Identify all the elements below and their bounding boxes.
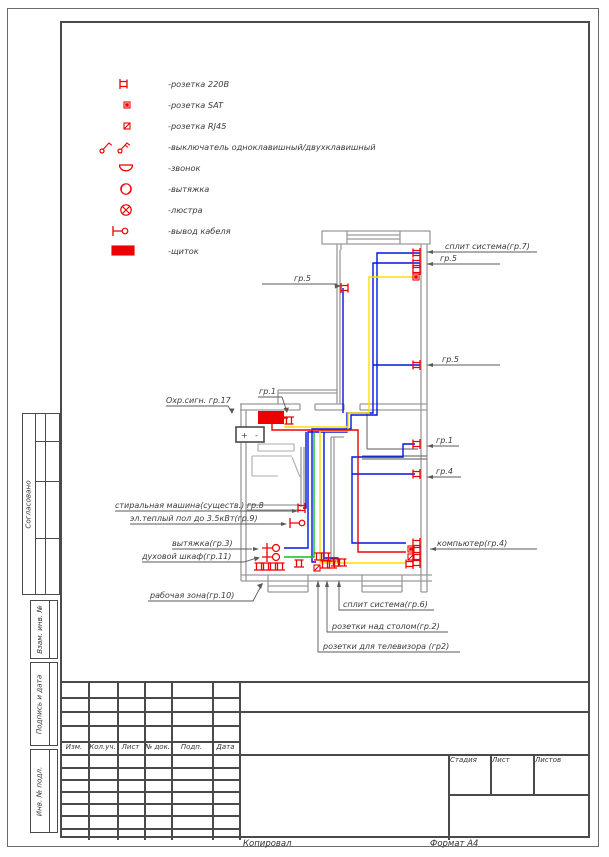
wire-red xyxy=(272,418,406,552)
battery-plus: + xyxy=(241,431,248,440)
replace-inv-label: Взам. инв. № xyxy=(30,600,48,659)
wire-green xyxy=(284,433,314,557)
label-washer: стиральная машина(существ.) гр.8 xyxy=(115,501,264,510)
legend-label-switch: -выключатель одноклавишный/двухклавишный xyxy=(168,142,376,152)
inv-orig-label: Инв. № подл. xyxy=(30,749,48,833)
title-block: Изм. Кол.уч. Лист № док. Подп. Дата Стад… xyxy=(60,681,590,840)
label-gr1-top: гр.1 xyxy=(259,387,276,396)
tb-sheets: Листов xyxy=(533,754,590,767)
closet-outline xyxy=(252,444,300,477)
label-work-zone: рабочая зона(гр.10) xyxy=(149,591,234,600)
label-oven: духовой шкаф(гр.11) xyxy=(141,552,231,561)
tb-col-data: Дата xyxy=(212,741,239,754)
tb-col-kol: Кол.уч. xyxy=(88,741,117,754)
drawing-sheet: + - xyxy=(0,0,609,857)
wire-blue xyxy=(284,253,420,564)
sign-date-label: Подпись и дата xyxy=(30,662,48,746)
tb-col-podp: Подп. xyxy=(171,741,212,754)
tb-col-doc: № док. xyxy=(144,741,171,754)
legend-label-cable-outlet: -вывод кабеля xyxy=(168,226,231,236)
legend-label-socket-sat: -розетка SAT xyxy=(168,100,224,110)
label-heated-floor: эл.теплый пол до 3.5кВт(гр.9) xyxy=(130,514,258,523)
tb-stage: Стадия xyxy=(448,754,490,767)
furniture-outline xyxy=(362,413,427,459)
legend-label-bell: -звонок xyxy=(168,163,201,173)
label-extract: вытяжка(гр.3) xyxy=(172,539,233,548)
tb-col-list: Лист xyxy=(117,741,144,754)
label-desk: розетки над столом(гр.2) xyxy=(331,622,440,631)
label-gr5-a: гр.5 xyxy=(440,254,457,263)
legend-label-socket-rj45: -розетка RJ45 xyxy=(168,121,226,131)
legend-label-panel: -щиток xyxy=(168,246,199,256)
legend-label-extract-fan: -вытяжка xyxy=(168,184,209,194)
format-label: Формат А4 xyxy=(430,839,478,849)
approved-label: Согласовано xyxy=(22,413,35,595)
panel-box xyxy=(258,411,284,424)
tb-col-izm: Изм. xyxy=(60,741,88,754)
battery-box: + - xyxy=(236,427,264,442)
wiring xyxy=(272,253,420,564)
label-split6: сплит система(гр.6) xyxy=(343,600,428,609)
label-gr5-b: гр.5 xyxy=(442,355,459,364)
legend: -розетка 220В -розетка SAT -розетка RJ45… xyxy=(168,79,376,256)
label-gr4-right: гр.4 xyxy=(436,467,453,476)
legend-label-socket-220: -розетка 220В xyxy=(168,79,230,89)
tb-sheet: Лист xyxy=(490,754,533,767)
label-tv: розетки для телевизора (гр2) xyxy=(322,642,449,651)
copied-label: Копировал xyxy=(243,839,292,849)
label-okhr: Охр.сигн. гр.17 xyxy=(166,396,232,405)
plan-labels: сплит система(гр.7) гр.5 гр.5 гр.5 гр.1 … xyxy=(115,242,530,651)
label-gr1-right: гр.1 xyxy=(436,436,453,445)
label-split7: сплит система(гр.7) xyxy=(445,242,530,251)
battery-minus: - xyxy=(255,431,258,440)
label-gr5-left: гр.5 xyxy=(294,274,311,283)
label-computer: компьютер(гр.4) xyxy=(437,539,507,548)
legend-label-chandelier: -люстра xyxy=(168,205,203,215)
electrical-symbols xyxy=(100,79,420,571)
